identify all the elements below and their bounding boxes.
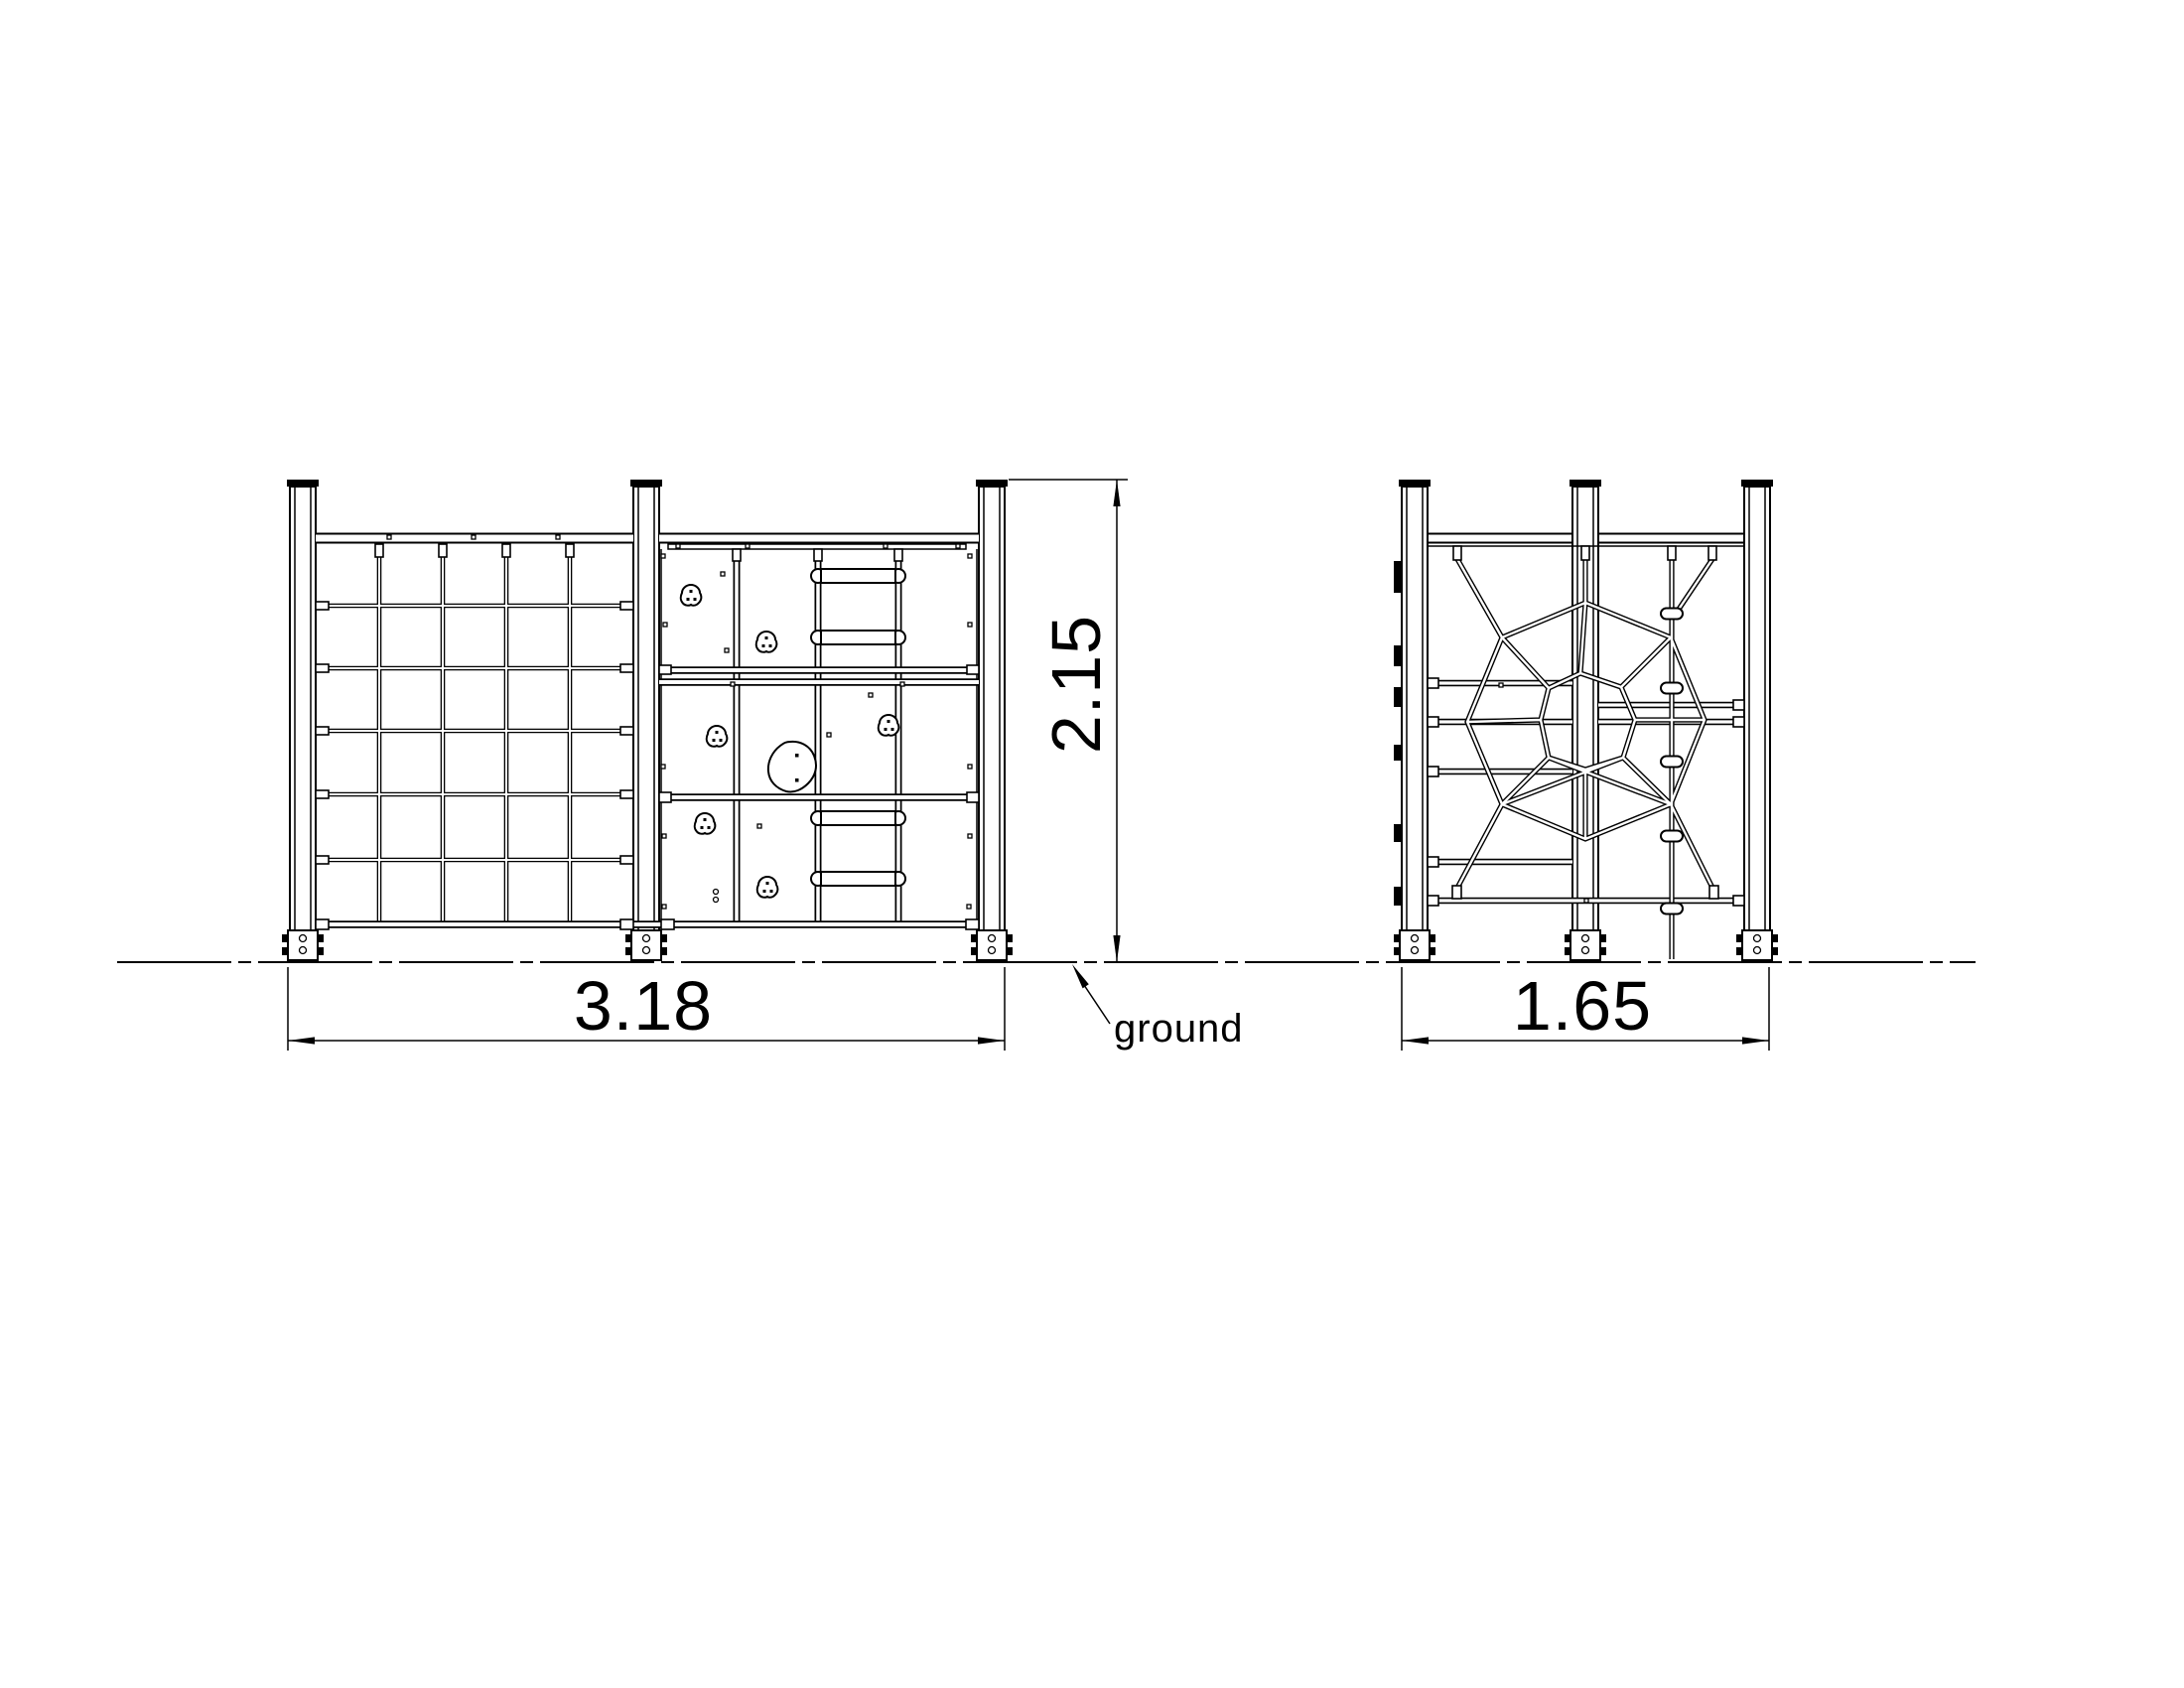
climbing-hold — [879, 715, 899, 736]
base-plate — [971, 930, 1013, 960]
technical-drawing-canvas: 3.18 2.15 1.65 ground — [0, 0, 2184, 1688]
climbing-hold — [695, 813, 716, 834]
base-plate — [625, 930, 667, 960]
height-value: 2.15 — [1037, 615, 1115, 754]
post — [287, 480, 319, 930]
base-plate — [1565, 930, 1606, 960]
climbing-hold-large — [768, 742, 816, 792]
ground-label: ground — [1114, 1007, 1244, 1051]
climbing-hold — [681, 585, 702, 606]
post — [630, 480, 662, 930]
climbing-net — [316, 544, 633, 921]
post — [976, 480, 1008, 930]
base-plate — [1736, 930, 1778, 960]
divider-hangers — [733, 549, 902, 561]
leader-arrow-icon — [1072, 964, 1089, 988]
dimension-side-width: 1.65 — [1402, 967, 1769, 1051]
base-plate — [1394, 930, 1435, 960]
front-width-value: 3.18 — [574, 967, 713, 1045]
climbing-hold — [707, 726, 728, 747]
net-hangers — [375, 544, 574, 557]
ground-label-group: ground — [1072, 964, 1244, 1051]
post — [1741, 480, 1773, 930]
side-width-value: 1.65 — [1513, 967, 1652, 1045]
climbing-hold — [757, 877, 778, 898]
post — [1399, 480, 1431, 930]
climbing-hold — [756, 632, 777, 652]
base-plates-front — [282, 930, 1013, 960]
base-plates-side — [1394, 930, 1778, 960]
dimension-height: 2.15 — [1009, 480, 1128, 962]
side-view — [1394, 480, 1778, 960]
dimension-front-width: 3.18 — [288, 967, 1005, 1051]
base-plate — [282, 930, 324, 960]
panel-edge-tabs — [1394, 561, 1402, 906]
